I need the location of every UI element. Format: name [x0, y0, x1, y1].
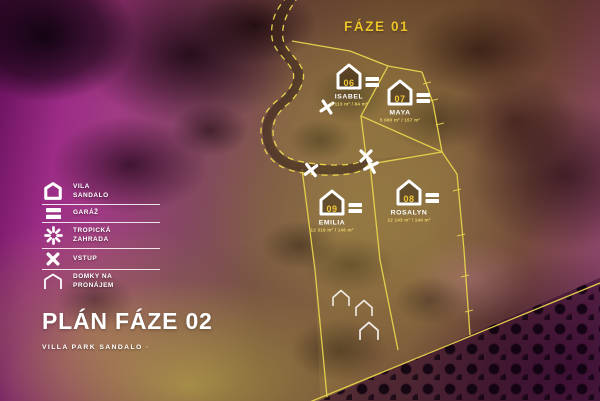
plot-fill-south: [302, 152, 470, 398]
legend-label: GARÁŽ: [73, 209, 119, 218]
legend: VILA SANDALO GARÁŽ TROPICKÁ ZAHRADA: [42, 179, 160, 294]
plot-fills: [268, 41, 470, 398]
plot-name: EMILIA: [319, 220, 346, 227]
plot-area: 12 143 m² / 144 m²: [388, 218, 431, 223]
plot-number: 06: [343, 78, 354, 88]
legend-item-tropicka-zahrada: TROPICKÁ ZAHRADA: [42, 223, 160, 249]
legend-item-domky-na-pronajem: DOMKY NA PRONÁJEM: [42, 270, 160, 294]
plot-area: 12 319 m² / 146 m²: [311, 228, 354, 233]
phase-01-label: FÁZE 01: [344, 19, 409, 34]
plot-name: ISABEL: [335, 94, 364, 101]
villa-icon: [42, 182, 64, 201]
page-subtitle: VILLA PARK SANDALO ·: [42, 344, 213, 351]
legend-item-vstup: VSTUP: [42, 249, 160, 270]
legend-item-garaz: GARÁŽ: [42, 205, 160, 223]
title-block: PLÁN FÁZE 02 VILLA PARK SANDALO ·: [42, 308, 213, 351]
plot-area: 5 113 m² / 84 m²: [330, 102, 367, 107]
rental-homes-icon: [42, 273, 64, 290]
plot-number: 09: [326, 204, 337, 214]
entrance-icon: [42, 252, 64, 266]
garage-icon: [42, 208, 64, 219]
page-title: PLÁN FÁZE 02: [42, 308, 213, 335]
legend-label: VILA SANDALO: [73, 183, 119, 201]
legend-label: VSTUP: [73, 255, 119, 264]
plot-name: MAYA: [389, 110, 410, 117]
tropical-garden-icon: [42, 226, 64, 245]
plot-name: ROSALYN: [391, 210, 428, 217]
legend-label: TROPICKÁ ZAHRADA: [73, 227, 119, 245]
plot-number: 07: [394, 94, 405, 104]
legend-label: DOMKY NA PRONÁJEM: [73, 273, 119, 291]
plot-area: 5 080 m² / 157 m²: [380, 118, 420, 123]
site-plan-map: 06 ISABEL 5 113 m² / 84 m² 07 MAYA 5 080…: [0, 0, 600, 401]
legend-item-vila-sandalo: VILA SANDALO: [42, 179, 160, 205]
plot-number: 08: [403, 194, 414, 204]
